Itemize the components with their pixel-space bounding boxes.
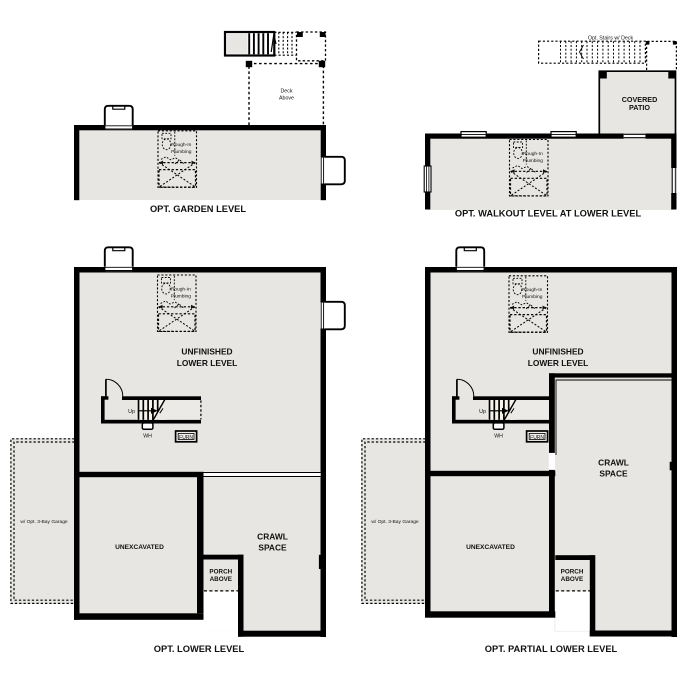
- svg-text:ABOVE: ABOVE: [210, 576, 232, 583]
- svg-text:Opt. Stairs w/ Deck: Opt. Stairs w/ Deck: [588, 36, 634, 42]
- svg-text:CRAWL: CRAWL: [598, 457, 629, 467]
- svg-text:SPACE: SPACE: [599, 468, 628, 478]
- svg-text:OPT. GARDEN LEVEL: OPT. GARDEN LEVEL: [150, 204, 246, 214]
- svg-text:PATIO: PATIO: [629, 103, 650, 112]
- svg-text:LOWER LEVEL: LOWER LEVEL: [177, 358, 238, 368]
- svg-text:w/ Opt. 3-Bay Garage: w/ Opt. 3-Bay Garage: [371, 519, 419, 525]
- svg-text:UNFINISHED: UNFINISHED: [181, 346, 232, 356]
- svg-text:LOWER LEVEL: LOWER LEVEL: [528, 358, 589, 368]
- svg-text:Above: Above: [279, 95, 294, 101]
- svg-text:Deck: Deck: [280, 88, 292, 94]
- svg-text:PORCH: PORCH: [209, 569, 232, 576]
- svg-text:UNFINISHED: UNFINISHED: [532, 346, 583, 356]
- svg-text:Up: Up: [128, 409, 135, 415]
- svg-text:FURN: FURN: [530, 435, 544, 441]
- svg-text:CRAWL: CRAWL: [257, 531, 288, 541]
- svg-text:UNEXCAVATED: UNEXCAVATED: [466, 544, 515, 551]
- svg-text:OPT. PARTIAL LOWER LEVEL: OPT. PARTIAL LOWER LEVEL: [485, 644, 618, 654]
- svg-text:OPT. LOWER LEVEL: OPT. LOWER LEVEL: [154, 644, 245, 654]
- svg-text:ABOVE: ABOVE: [561, 576, 583, 583]
- svg-text:OPT. WALKOUT LEVEL AT LOWER LE: OPT. WALKOUT LEVEL AT LOWER LEVEL: [455, 209, 642, 219]
- svg-text:PORCH: PORCH: [561, 569, 584, 576]
- svg-text:WH: WH: [494, 433, 503, 439]
- svg-text:FURN: FURN: [179, 435, 193, 441]
- svg-text:SPACE: SPACE: [258, 542, 287, 552]
- svg-text:w/ Opt. 3-Bay Garage: w/ Opt. 3-Bay Garage: [20, 519, 68, 525]
- svg-text:Up: Up: [479, 409, 486, 415]
- svg-text:UNEXCAVATED: UNEXCAVATED: [115, 544, 164, 551]
- svg-text:WH: WH: [143, 433, 152, 439]
